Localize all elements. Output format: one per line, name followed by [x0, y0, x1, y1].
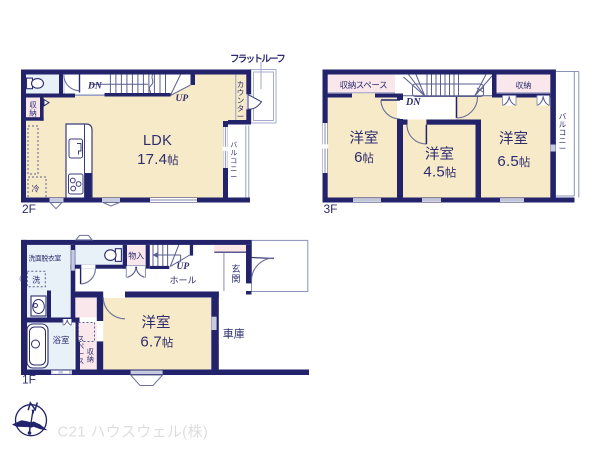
svg-text:物入: 物入: [128, 251, 144, 261]
svg-text:UP: UP: [176, 94, 189, 104]
svg-text:UP: UP: [177, 262, 190, 272]
svg-text:バ: バ: [230, 141, 237, 149]
svg-text:収納スペース: 収納スペース: [340, 80, 388, 90]
svg-text:納: 納: [87, 355, 94, 364]
svg-text:DN: DN: [87, 82, 103, 92]
svg-text:収: 収: [87, 348, 94, 356]
svg-text:洋室: 洋室: [425, 146, 454, 163]
svg-text:LDK: LDK: [143, 133, 172, 149]
svg-text:コ: コ: [230, 157, 237, 165]
svg-text:2F: 2F: [22, 202, 36, 216]
svg-text:ニ: ニ: [230, 166, 237, 173]
svg-text:ル: ル: [230, 150, 237, 157]
svg-text:洋室: 洋室: [499, 131, 528, 148]
svg-text:関: 関: [231, 274, 240, 284]
svg-text:3F: 3F: [324, 202, 338, 216]
svg-text:ス: ス: [77, 335, 84, 343]
svg-text:DN: DN: [405, 97, 421, 108]
svg-text:洗: 洗: [32, 275, 40, 285]
svg-text:収納: 収納: [515, 80, 531, 90]
svg-text:ホール: ホール: [169, 276, 196, 286]
svg-text:ペ: ペ: [77, 343, 84, 351]
svg-text:1F: 1F: [22, 372, 36, 386]
svg-text:ー: ー: [237, 112, 245, 121]
svg-text:洋室: 洋室: [350, 130, 379, 147]
svg-text:冷: 冷: [32, 184, 40, 194]
svg-text:浴室: 浴室: [52, 335, 70, 345]
svg-text:ー: ー: [77, 351, 84, 358]
svg-text:ー: ー: [230, 174, 237, 181]
svg-text:納: 納: [29, 108, 37, 118]
svg-text:ス: ス: [77, 358, 84, 366]
svg-text:洋室: 洋室: [142, 315, 171, 332]
svg-text:玄: 玄: [231, 263, 240, 274]
svg-text:洗面脱衣室: 洗面脱衣室: [29, 254, 62, 263]
svg-text:フラットルーフ: フラットルーフ: [230, 54, 285, 65]
svg-text:車庫: 車庫: [223, 327, 245, 341]
svg-text:ー: ー: [559, 144, 567, 153]
svg-text:C21 ハウスウェル(株): C21 ハウスウェル(株): [58, 424, 209, 441]
